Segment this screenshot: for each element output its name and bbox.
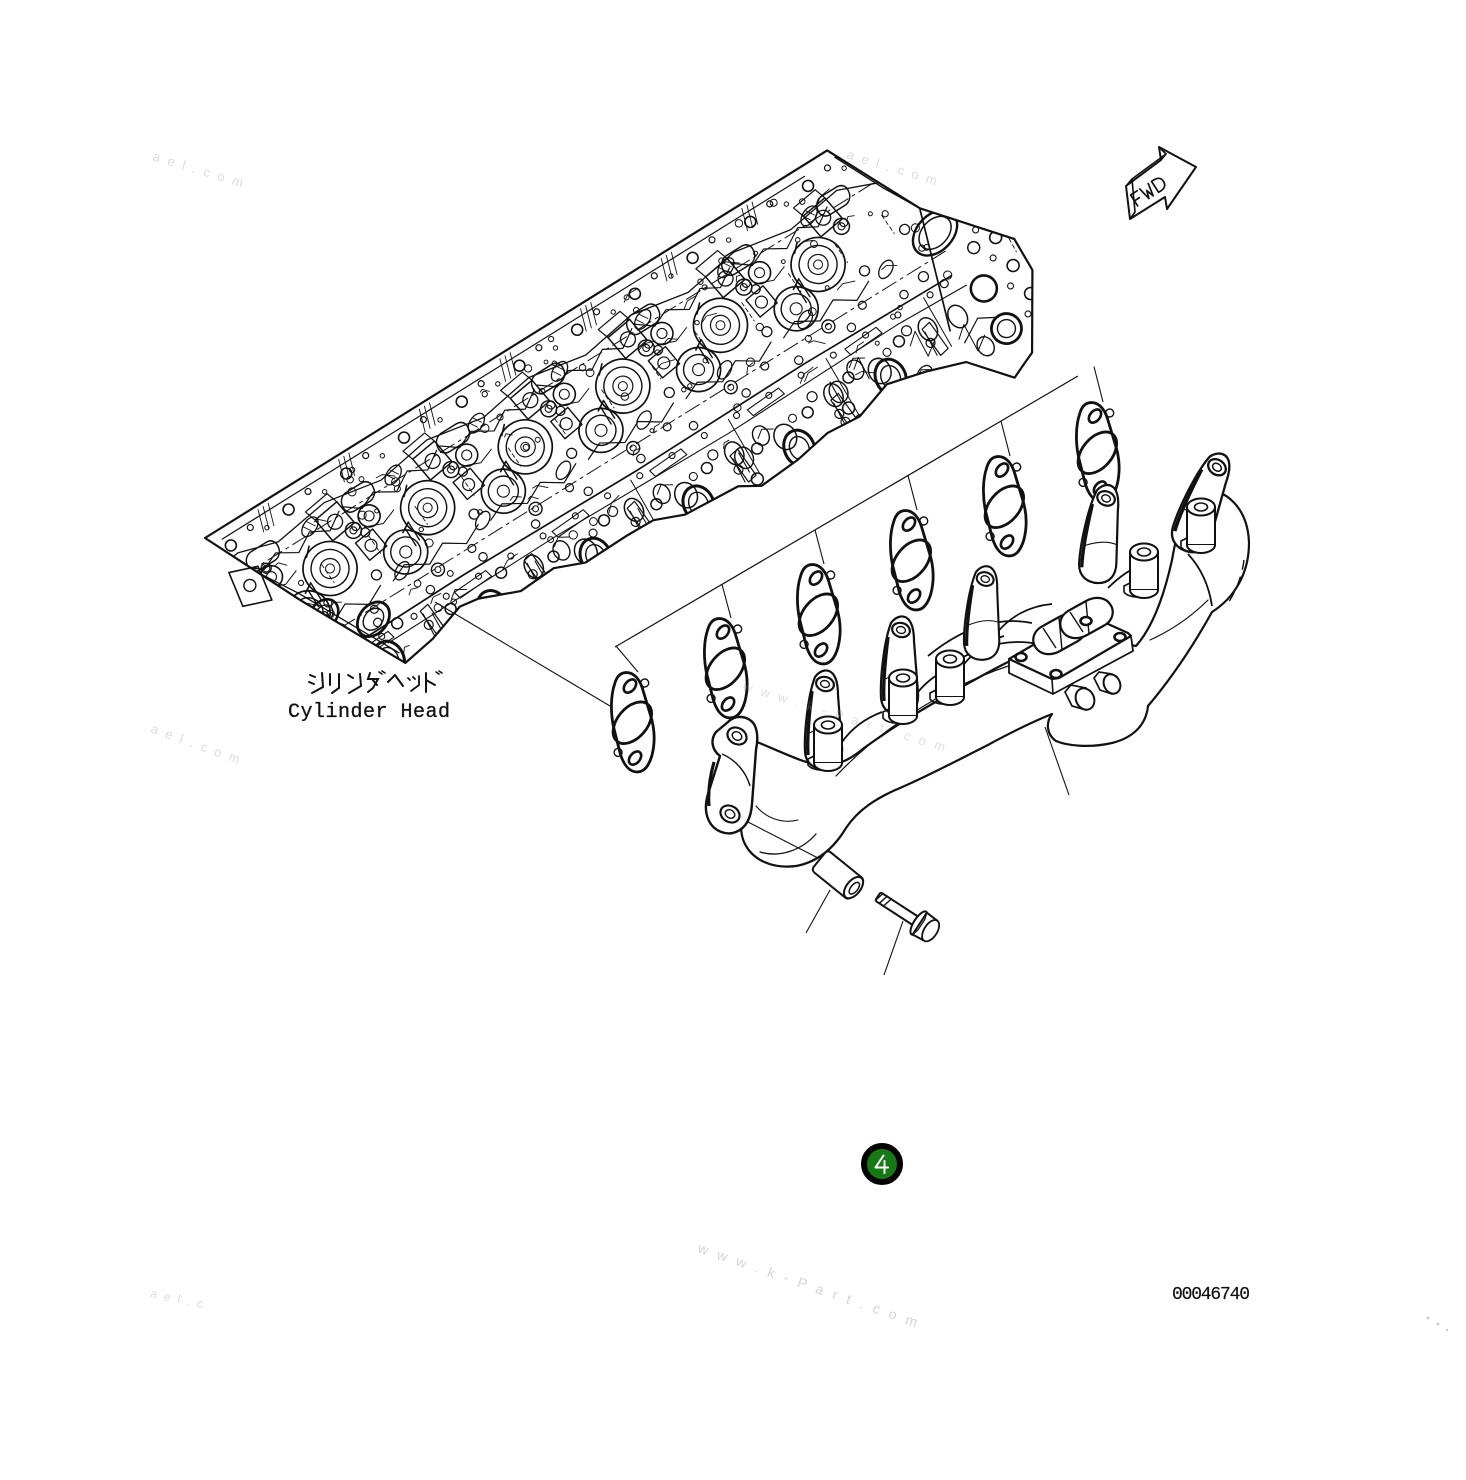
- svg-text:Cylinder Head: Cylinder Head: [288, 701, 451, 724]
- svg-text:00046740: 00046740: [1172, 1285, 1249, 1305]
